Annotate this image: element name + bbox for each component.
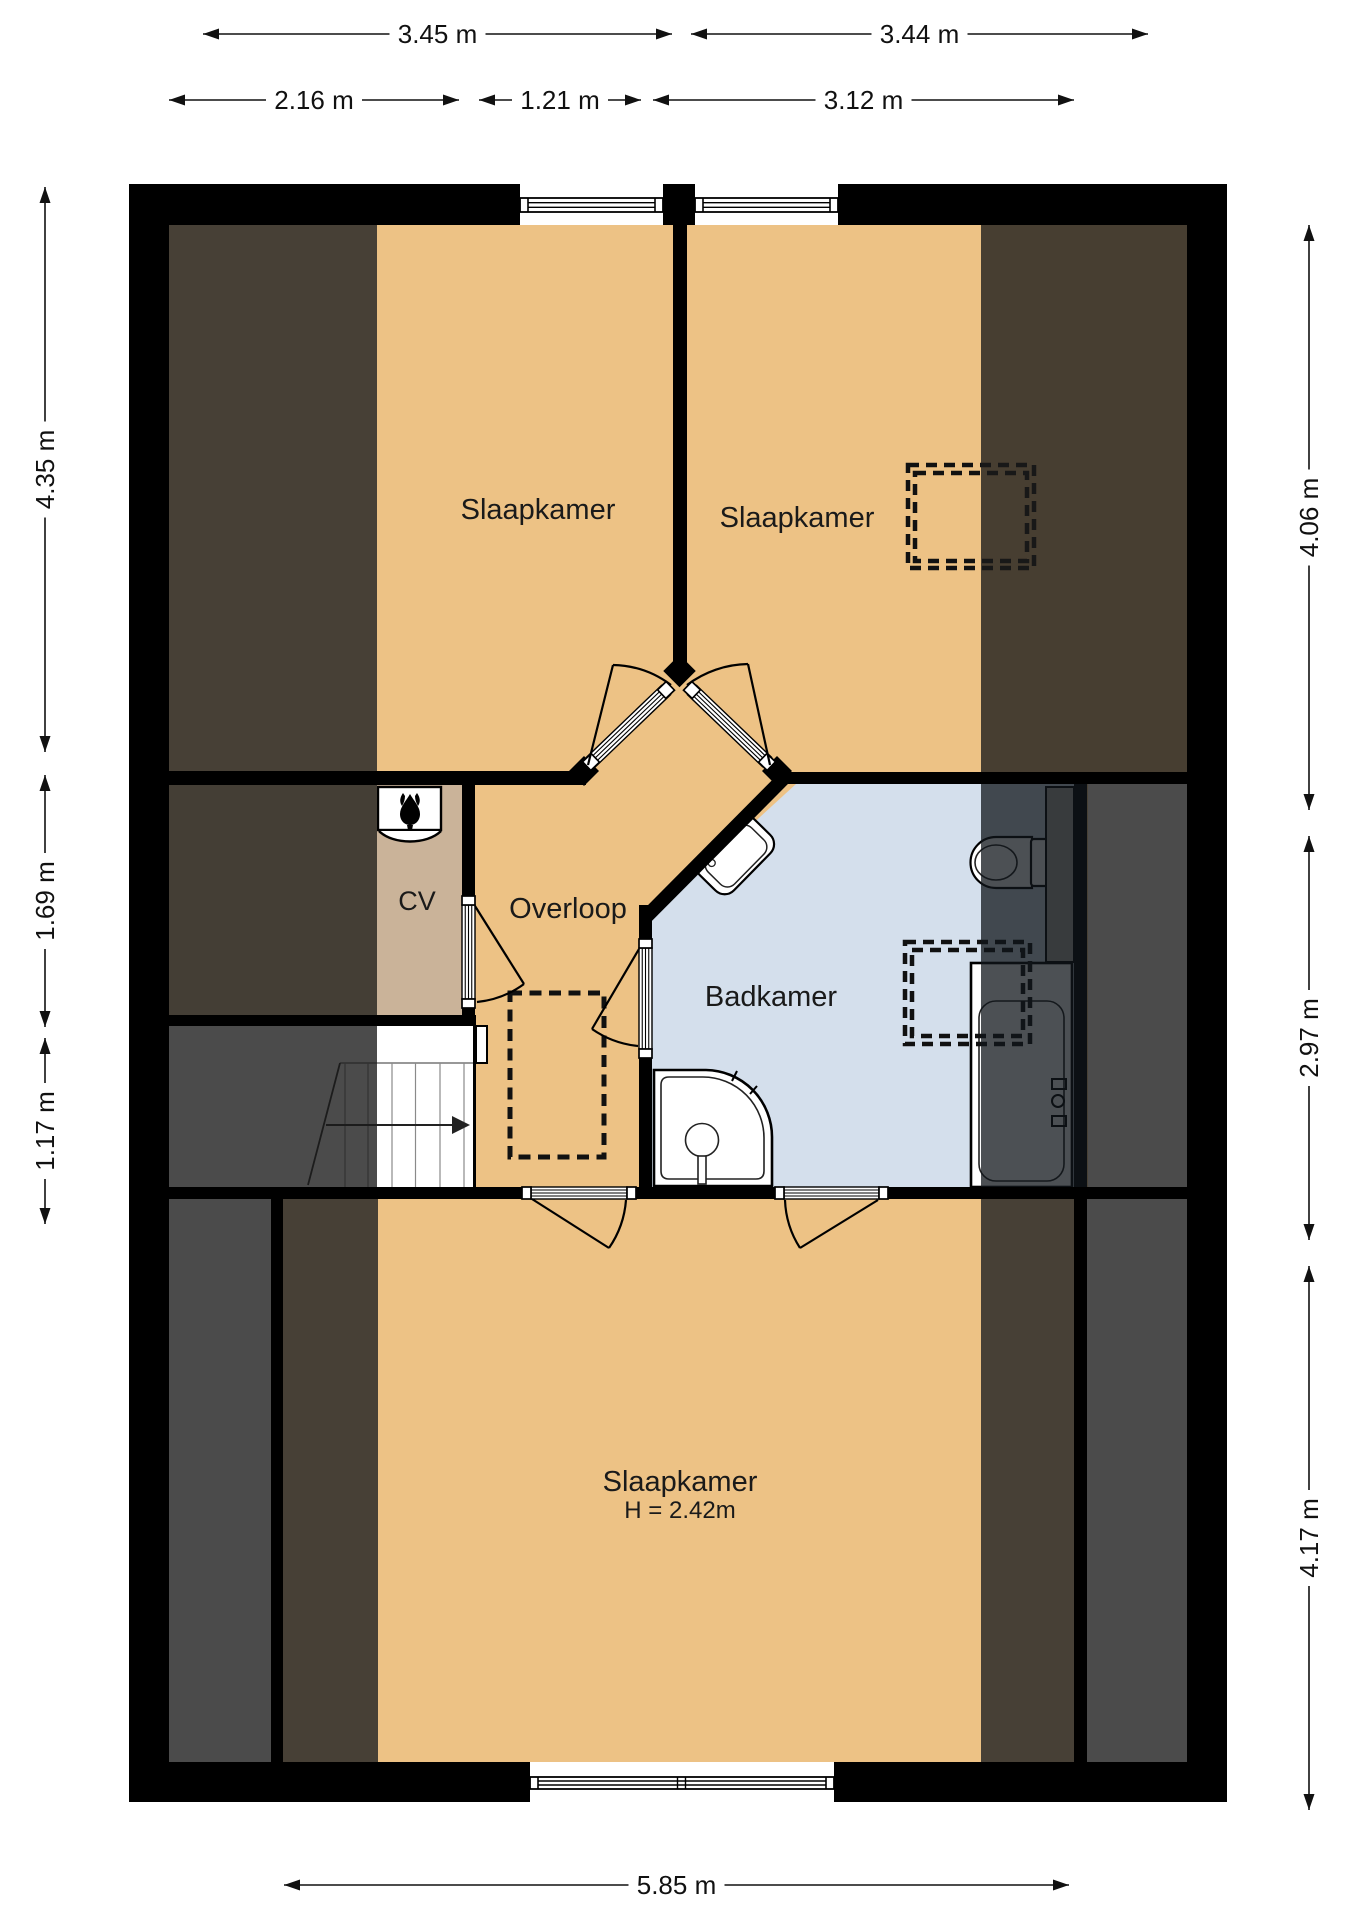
svg-text:1.17 m: 1.17 m xyxy=(30,1091,60,1171)
svg-text:4.35 m: 4.35 m xyxy=(30,430,60,510)
svg-text:1.69 m: 1.69 m xyxy=(30,861,60,941)
svg-text:Slaapkamer: Slaapkamer xyxy=(603,1466,758,1498)
svg-text:2.97 m: 2.97 m xyxy=(1294,998,1324,1078)
svg-text:3.12 m: 3.12 m xyxy=(824,85,904,115)
svg-text:4.06 m: 4.06 m xyxy=(1294,478,1324,558)
svg-text:Overloop: Overloop xyxy=(509,893,627,925)
svg-text:2.16 m: 2.16 m xyxy=(274,85,354,115)
svg-text:Badkamer: Badkamer xyxy=(705,981,838,1013)
svg-text:5.85 m: 5.85 m xyxy=(637,1870,717,1900)
svg-text:CV: CV xyxy=(398,886,436,916)
svg-text:3.45 m: 3.45 m xyxy=(398,19,478,49)
svg-text:4.17 m: 4.17 m xyxy=(1294,1498,1324,1578)
svg-text:Slaapkamer: Slaapkamer xyxy=(461,494,616,526)
svg-text:H = 2.42m: H = 2.42m xyxy=(624,1497,735,1524)
svg-text:Slaapkamer: Slaapkamer xyxy=(720,502,875,534)
svg-text:1.21 m: 1.21 m xyxy=(520,85,600,115)
svg-text:3.44 m: 3.44 m xyxy=(880,19,960,49)
